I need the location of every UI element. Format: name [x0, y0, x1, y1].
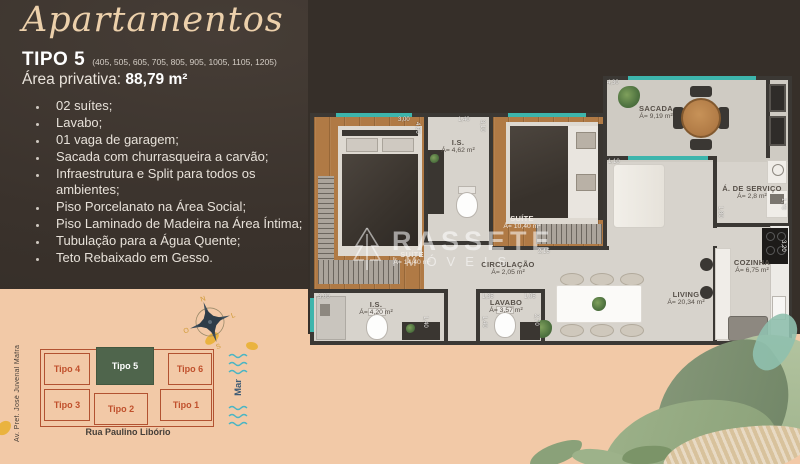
site-block-tipo2: Tipo 2	[94, 393, 148, 425]
dimension-label: 1,10	[608, 159, 620, 165]
svg-text:L: L	[230, 312, 236, 320]
feature-list: 02 suítes; Lavabo; 01 vaga de garagem; S…	[30, 98, 316, 267]
floor-plan: SACADA Á= 9,19 m² SUÍTE Á= 14,40 m² I.S.…	[310, 58, 792, 348]
burner-icon	[766, 232, 775, 241]
is2-shower-head	[320, 304, 330, 316]
suite2-pillow	[576, 132, 596, 149]
sofa	[613, 164, 665, 228]
site-map: Tipo 4 Tipo 5 Tipo 6 Tipo 3 Tipo 2 Tipo …	[40, 347, 216, 429]
dimension-label: 1,35	[482, 294, 494, 300]
svg-text:O: O	[183, 327, 191, 336]
appliance-cabinet	[769, 116, 786, 146]
dimension-label: 3,00	[398, 117, 410, 123]
feature-item: Lavabo;	[48, 115, 316, 131]
watermark: RASSETE IMÓVEIS	[350, 226, 555, 272]
waves-icon	[228, 404, 254, 428]
window-strip	[628, 76, 756, 80]
site-block-tipo1: Tipo 1	[160, 389, 212, 421]
dimension-label: 1,70	[780, 198, 786, 210]
feature-item: Teto Rebaixado em Gesso.	[48, 250, 316, 266]
is1-toilet	[456, 192, 478, 218]
wall-segment	[603, 162, 607, 250]
leaf-doodle-icon	[0, 418, 13, 438]
dimension-label: 1,80	[717, 206, 723, 218]
wall-segment	[444, 289, 448, 345]
sacada-chair	[690, 86, 712, 97]
dimension-label: 1,40	[422, 316, 428, 328]
private-area-label: Área privativa:	[22, 71, 121, 88]
leaf-doodle-icon	[245, 340, 259, 352]
sacada-chair	[690, 139, 712, 150]
watermark-text: RASSETE IMÓVEIS	[392, 228, 555, 270]
room-label-cozinha: COZINHA Á= 6,75 m²	[714, 258, 790, 274]
dining-chair	[560, 324, 584, 337]
room-label-sacada: SACADA Á= 9,19 m²	[620, 104, 692, 120]
suite2-bed-headboard	[598, 124, 603, 220]
tipo-heading: TIPO 5(405, 505, 605, 705, 805, 905, 100…	[22, 49, 277, 71]
waves-icon	[228, 352, 254, 376]
dimension-label: 4,30	[607, 80, 619, 86]
site-block-tipo3: Tipo 3	[44, 389, 90, 421]
private-area-line: Área privativa: 88,79 m²	[22, 71, 187, 89]
suite1-pillow	[346, 138, 378, 152]
street-label-left: Av. Pref. José Juvenal Mafra	[14, 344, 21, 442]
suite2-pillow	[576, 174, 596, 191]
dimension-label: 1,40	[481, 316, 487, 328]
tree-logo-icon	[350, 226, 384, 272]
dimension-label: 3,00	[318, 294, 330, 300]
dimension-label: 4,60	[414, 122, 420, 134]
washer-drum-icon	[772, 164, 784, 176]
dining-chair	[620, 324, 644, 337]
site-block-tipo6: Tipo 6	[168, 353, 212, 385]
feature-item: Piso Porcelanato na Área Social;	[48, 199, 316, 215]
dimension-label: 3,20	[780, 240, 786, 252]
feature-item: Sacada com churrasqueira a carvão;	[48, 149, 316, 165]
dimension-label: 2,70	[533, 314, 539, 326]
suite1-bed-headboard	[342, 130, 418, 136]
tipo-label: TIPO 5	[22, 49, 85, 70]
feature-item: Infraestrutura e Split para todos os amb…	[48, 166, 316, 199]
feature-item: 01 vaga de garagem;	[48, 132, 316, 148]
feature-item: Tubulação para a Água Quente;	[48, 233, 316, 249]
window-strip	[508, 113, 586, 117]
room-label-servico: Á. DE SERVIÇO Á= 2,8 m²	[714, 184, 790, 200]
wall-segment	[310, 289, 448, 293]
page-title: Apartamentos	[22, 0, 302, 40]
suite1-pillow	[382, 138, 414, 152]
wall-segment	[476, 289, 545, 293]
street-label-bottom: Rua Paulino Libório	[40, 427, 216, 437]
room-label-is1: I.S. Á= 4,62 m²	[426, 138, 490, 154]
room-label-living: LIVING Á= 20,34 m²	[644, 290, 728, 306]
site-block-tipo5: Tipo 5	[96, 347, 154, 385]
stool	[700, 258, 713, 271]
suite2-bed-blanket	[510, 126, 568, 218]
svg-text:N: N	[200, 295, 207, 303]
dimension-label: 3,10	[479, 120, 485, 132]
room-label-is2: I.S. Á= 4,20 m²	[346, 300, 406, 316]
private-area-value: 88,79 m²	[125, 71, 187, 88]
feature-item: Piso Laminado de Madeira na Área Íntima;	[48, 216, 316, 232]
dining-chair	[590, 324, 614, 337]
burner-icon	[766, 246, 775, 255]
room-label-lavabo: LAVABO Á= 3,57 m²	[474, 298, 538, 314]
window-strip	[628, 156, 708, 160]
sea-label: Mar	[233, 379, 244, 396]
wall-segment	[603, 76, 607, 162]
is2-toilet	[366, 314, 388, 340]
tipo-unit-numbers: (405, 505, 605, 705, 805, 905, 1005, 110…	[92, 57, 277, 67]
site-block-tipo4: Tipo 4	[44, 353, 90, 385]
window-strip	[310, 298, 314, 332]
feature-item: 02 suítes;	[48, 98, 316, 114]
brochure-page: Apartamentos TIPO 5(405, 505, 605, 705, …	[0, 0, 800, 464]
appliance-cabinet	[769, 84, 786, 112]
svg-text:S: S	[215, 343, 222, 351]
lavabo-toilet	[494, 312, 516, 338]
dimension-label: 1,40	[458, 117, 470, 123]
dimension-label: 1,05	[524, 294, 536, 300]
is2-shower	[316, 296, 346, 340]
